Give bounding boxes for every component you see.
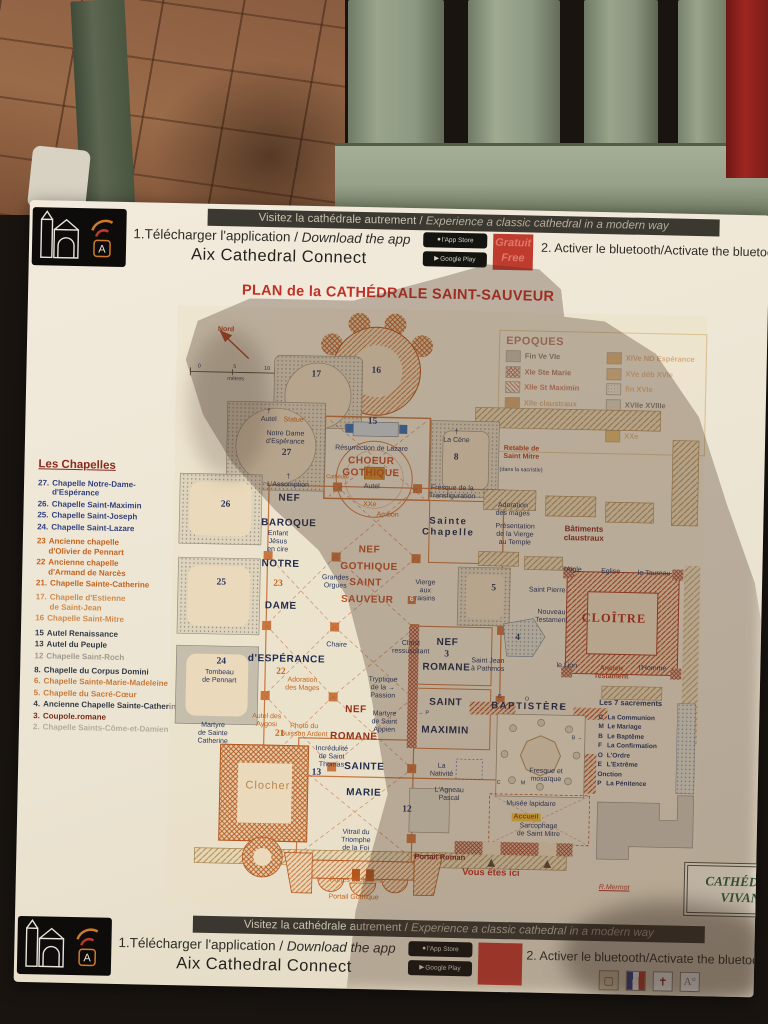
- map-label: MAXIMIN: [421, 725, 469, 737]
- map-label: Photo du Buisson Ardent: [280, 722, 327, 739]
- map-label: 15: [368, 417, 378, 428]
- download-instruction: 1.Télécharger l'application / Download t…: [118, 935, 411, 978]
- app-name: Aix Cathedral Connect: [133, 244, 425, 269]
- googleplay-label: Google Play: [440, 256, 476, 264]
- cathedrale-vivante-box: CATHÉDRALE VIVANTE: [683, 862, 768, 919]
- map-label: ROMANE: [422, 662, 470, 675]
- information-panel: Visitez la cathédrale autrement / Experi…: [14, 200, 768, 997]
- map-label: ← P: [418, 710, 429, 717]
- bench-slat: [678, 0, 728, 146]
- partner-logos: ▢ ✝ A°: [599, 970, 700, 992]
- googleplay-badge: ▶Google Play: [408, 960, 472, 976]
- map-label: Accueil: [511, 813, 540, 822]
- floor-shadow: [150, 60, 350, 220]
- map-label: Adoration des Mages: [285, 677, 320, 694]
- map-label: F: [559, 705, 563, 711]
- map-label: 6: [408, 596, 416, 604]
- app-logo: A: [32, 207, 127, 267]
- map-label: 13: [312, 768, 322, 779]
- map-label: Fresque et mosaïque: [529, 768, 563, 785]
- map-label: Portail Gothique: [328, 894, 378, 903]
- map-label: Vous êtes ici: [462, 868, 520, 880]
- map-label: † Autel: [261, 408, 277, 424]
- map-label: NEF: [278, 493, 300, 505]
- map-label: 5: [491, 583, 496, 594]
- map-label: Grandes Orgues: [322, 574, 349, 591]
- map-label: O: [525, 696, 529, 702]
- map-label: SAINT: [349, 577, 382, 589]
- download-instruction-en: Download the app: [287, 939, 396, 956]
- map-label: Tombeau de Pennart: [202, 668, 237, 685]
- download-instruction-fr: 1.Télécharger l'application /: [133, 226, 302, 245]
- bluetooth-instruction: 2. Activer le bluetooth/Activate the blu…: [526, 949, 766, 968]
- map-label: Enfant Jésus en cire: [267, 530, 289, 555]
- map-label: le Lion: [556, 662, 577, 670]
- map-label: E: [498, 694, 502, 700]
- apple-icon: ●: [437, 232, 441, 247]
- map-label: CHOEUR GOTHIQUE: [342, 455, 400, 479]
- map-label: La Nativité: [430, 762, 454, 779]
- map-label: 5: [233, 364, 236, 370]
- apple-icon: ●: [422, 941, 426, 956]
- map-label: 26: [221, 499, 231, 510]
- bench-slat: [348, 0, 444, 152]
- map-label: Sainte Chapelle: [422, 516, 475, 539]
- map-label: XXe: [363, 501, 376, 509]
- banner-strip-fr: Visitez la cathédrale autrement /: [258, 212, 422, 227]
- map-label: SAINTE: [344, 761, 385, 773]
- map-label: 0: [198, 364, 201, 370]
- app-name: Aix Cathedral Connect: [118, 953, 410, 978]
- map-label: Martyre de Saint Appien: [371, 710, 397, 735]
- map-label: Musée lapidaire: [506, 800, 556, 809]
- map-label: Vitrail du Triomphe de la Foi: [341, 828, 371, 853]
- map-label: Retable de Saint Mitre: [503, 445, 539, 462]
- map-label: Portail Roman: [414, 853, 465, 863]
- banner-strip-en: Experience a classic cathedral in a mode…: [408, 922, 654, 939]
- map-label: Fresque de la Transfiguration: [429, 485, 476, 502]
- map-label: 4: [515, 633, 520, 644]
- googleplay-badge: ▶Google Play: [423, 251, 487, 267]
- map-label: L'Agneau Pascal: [434, 786, 464, 803]
- map-label: 22: [276, 667, 286, 678]
- banner-strip-en: Experience a classic cathedral in a mode…: [423, 215, 669, 232]
- map-label: 27: [282, 448, 292, 459]
- map-label: Bâtiments claustraux: [564, 524, 604, 543]
- map-label: d'ESPÉRANCE: [248, 653, 326, 666]
- free-fr: Gratuit: [495, 237, 531, 250]
- map-label: 8: [454, 452, 459, 463]
- map-label: 21: [275, 728, 285, 739]
- map-label: BAROQUE: [261, 517, 317, 530]
- map-label: 16: [371, 366, 381, 377]
- bench-slat: [468, 0, 560, 150]
- map-label: Saint Jean à Pathmos: [471, 657, 505, 674]
- bench-rail: [335, 143, 768, 216]
- svg-text:A: A: [83, 952, 91, 964]
- map-label: SAINT: [429, 697, 462, 709]
- map-label: Clocher: [245, 780, 290, 794]
- aix-logo-icon: A°: [680, 972, 700, 992]
- map-label: NOTRE: [261, 558, 299, 570]
- bluetooth-instruction: 2. Activer le bluetooth/Activate the blu…: [541, 241, 768, 260]
- map-label: NEF: [436, 637, 458, 649]
- photo-of-cathedral-plan-panel: Visitez la cathédrale autrement / Experi…: [0, 0, 768, 1024]
- diocese-cross-logo-icon: ✝: [653, 971, 673, 991]
- map-label: GOTHIQUE: [340, 561, 398, 574]
- map-label: Nord: [218, 326, 235, 334]
- map-label: Autel: [364, 483, 380, 491]
- map-label: Ancien Testament: [594, 665, 629, 682]
- red-object: [726, 0, 768, 178]
- map-label: Vierge aux raisins: [415, 579, 436, 604]
- france-flag-logo-icon: [626, 971, 646, 991]
- map-label: M: [521, 780, 526, 786]
- map-label: l'Aigle: [563, 567, 582, 575]
- map-label: (dans la sacristie): [499, 467, 542, 474]
- appstore-label: l'App Store: [427, 945, 459, 953]
- map-label: † La Cène: [443, 429, 470, 446]
- map-label: Adoration des mages: [496, 502, 531, 519]
- map-label: Ambon: [376, 512, 398, 521]
- map-label: Cathèdre: [326, 474, 349, 481]
- play-icon: ▶: [419, 960, 424, 975]
- map-label: mètres: [227, 376, 244, 383]
- map-label: Portes sculptées: [330, 876, 382, 885]
- map-label: BAPTISTÈRE: [491, 702, 567, 715]
- sacrement-item: EL'Extrême Onction: [597, 760, 707, 781]
- map-label: l'Homme: [639, 665, 667, 674]
- free-label-box: [478, 943, 523, 986]
- map-label: NEF: [345, 704, 367, 716]
- download-instruction-fr: 1.Télécharger l'application /: [118, 935, 287, 954]
- download-instruction: 1.Télécharger l'application / Download t…: [133, 226, 426, 269]
- map-label: le Taureau: [638, 569, 671, 578]
- plan-title: PLAN de la CATHÉDRALE SAINT-SAUVEUR: [28, 278, 768, 309]
- play-icon: ▶: [434, 251, 439, 266]
- map-label: NEF: [359, 544, 381, 556]
- monument-logo-icon: ▢: [599, 970, 619, 990]
- map-label: Tryptique de la → Passion: [368, 676, 397, 701]
- map-label: Autel des Aygosi: [252, 713, 282, 730]
- map-label: Résurrection de Lazare: [335, 444, 408, 454]
- map-label: Martyre de Sainte Catherine: [197, 722, 228, 747]
- map-label: Notre Dame d'Espérance: [266, 430, 305, 447]
- map-label: C: [497, 780, 501, 786]
- map-label: Saint Pierre: [529, 587, 566, 596]
- map-label: 25: [216, 577, 226, 588]
- appstore-badge: ●l'App Store: [423, 232, 487, 248]
- appstore-badge: ●l'App Store: [408, 941, 472, 957]
- map-label: DAME: [265, 600, 297, 612]
- map-label: † L'Assomption: [267, 473, 309, 490]
- sacrements-list: CLa CommunionMLe MariageBLe BaptêmeFLa C…: [597, 713, 709, 791]
- map-label: Sarcophage de Saint Mitre: [517, 823, 561, 840]
- floor-plan: Nord0510mètres171615† AutelStatueNotre D…: [165, 305, 707, 916]
- map-label: R.Mermot: [599, 884, 630, 893]
- map-label: Nouveau Testament: [535, 608, 568, 625]
- map-label: 17: [311, 369, 321, 380]
- banner-strip-fr: Visitez la cathédrale autrement /: [244, 919, 408, 934]
- svg-text:A: A: [98, 243, 106, 255]
- cathedral-app-logo-icon: A: [32, 207, 127, 267]
- download-instruction-en: Download the app: [302, 230, 411, 247]
- free-en: Free: [501, 252, 524, 264]
- map-label: 3: [444, 649, 449, 660]
- app-logo: A: [17, 916, 112, 976]
- map-label: 23: [273, 578, 283, 589]
- free-label-box: GratuitFree: [493, 234, 534, 271]
- cathedral-app-logo-icon: A: [17, 916, 112, 976]
- map-label: Eglise: [601, 568, 620, 576]
- bench-slat: [584, 0, 658, 148]
- map-label: 12: [402, 805, 412, 816]
- appstore-label: l'App Store: [442, 237, 474, 245]
- map-label: Présentation de la Vierge au Temple: [495, 523, 535, 548]
- map-label: CLOÎTRE: [581, 610, 646, 626]
- map-label: Chaire: [326, 641, 347, 649]
- map-label: Statue: [283, 417, 303, 425]
- map-label: SAUVEUR: [341, 594, 394, 607]
- map-label: Les 7 sacrements: [599, 699, 662, 709]
- googleplay-label: Google Play: [425, 964, 461, 972]
- map-label: MARIE: [346, 787, 381, 799]
- map-label: 10: [264, 366, 270, 372]
- map-label: Christ ressuscitant: [392, 639, 430, 656]
- map-label: B →: [572, 735, 583, 742]
- map-label: 24: [216, 656, 226, 667]
- map-label: Incrédulité de Saint Thomas: [315, 745, 348, 770]
